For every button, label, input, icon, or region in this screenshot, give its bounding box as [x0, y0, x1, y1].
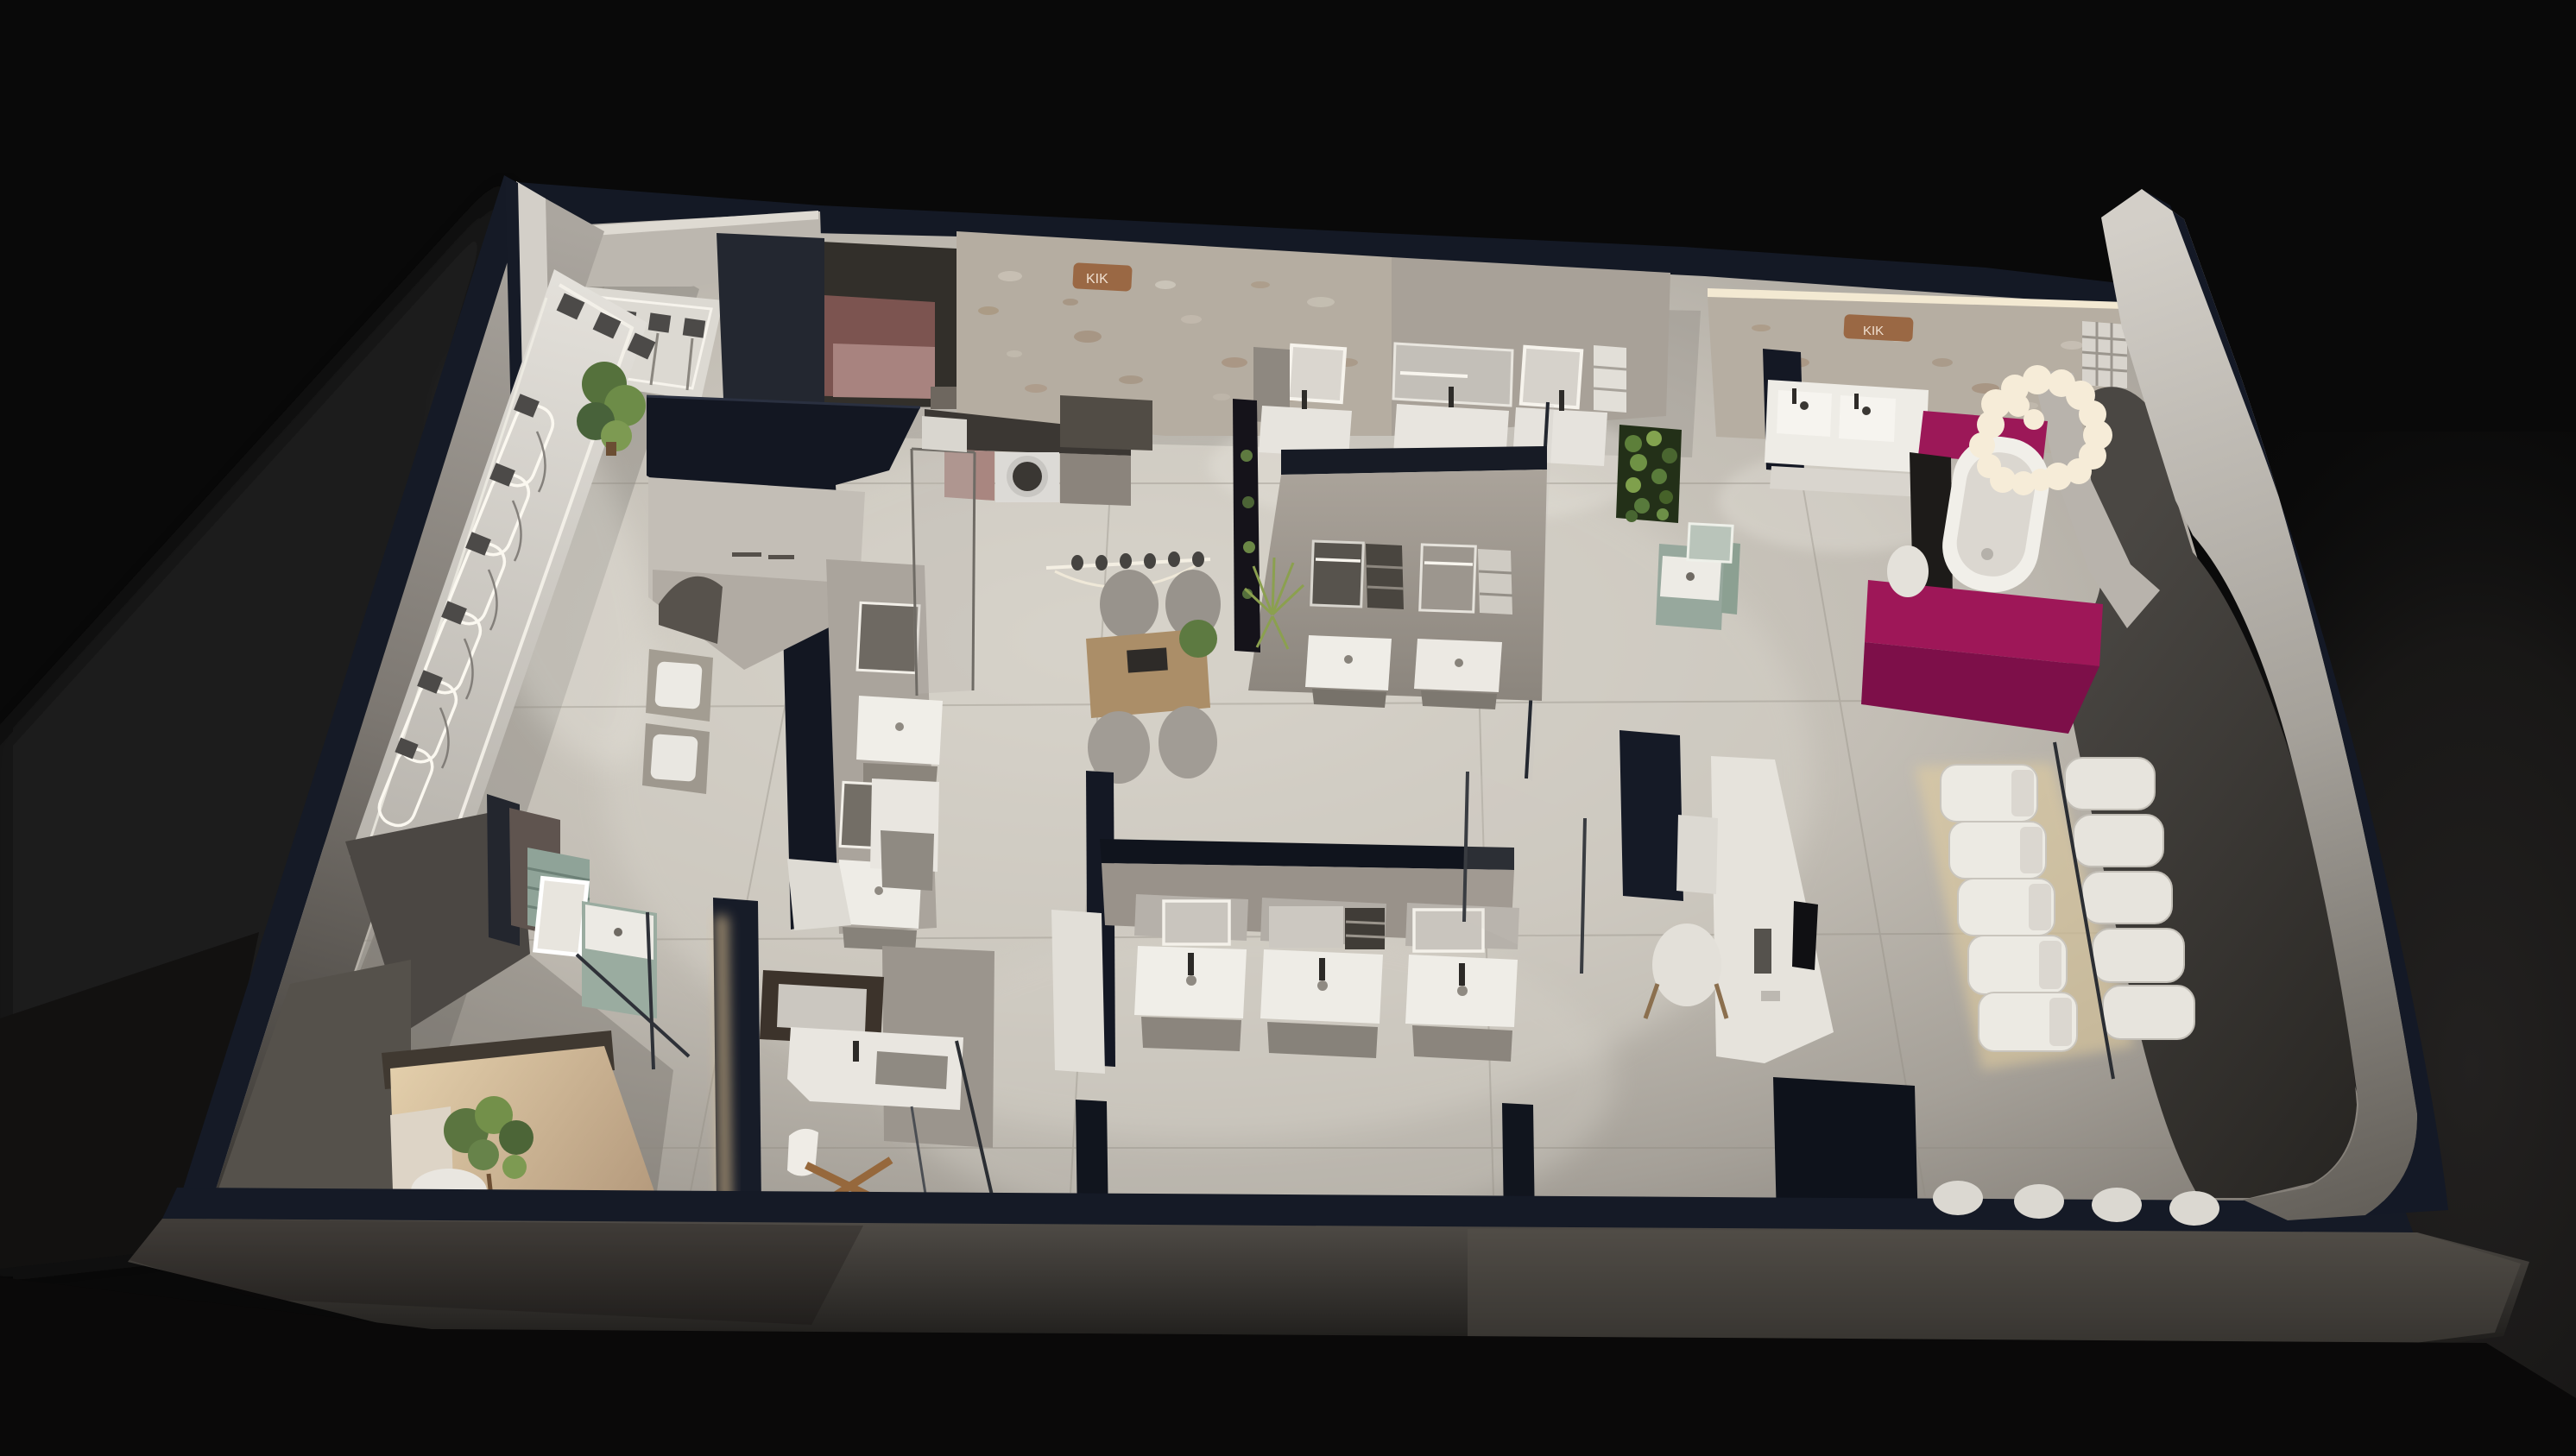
- svg-text:KIK: KIK: [1086, 272, 1108, 287]
- svg-text:KIK: KIK: [1863, 324, 1884, 338]
